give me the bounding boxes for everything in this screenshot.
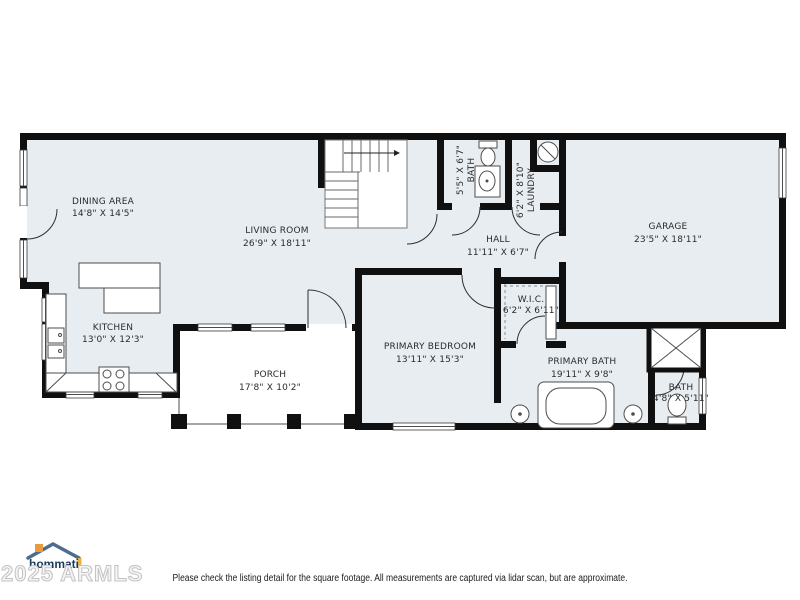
staircase: [325, 140, 407, 228]
porch-pillar: [171, 414, 187, 429]
laundry-fixtures: [538, 142, 558, 162]
armls-watermark: 2025 ARMLS: [1, 561, 143, 586]
bathtub: [538, 382, 614, 428]
room-dims-laundry: 6'2" X 8'10": [516, 162, 526, 218]
room-dims-dining: 14'8" X 14'5": [72, 209, 134, 219]
room-label-laundry: LAUNDRY: [527, 168, 537, 213]
room-label-bath-2: BATH: [669, 383, 694, 393]
room-label-garage: GARAGE: [649, 222, 688, 232]
logo-chimney-icon: [35, 544, 43, 552]
room-label-wic: W.I.C.: [518, 295, 545, 305]
room-dims-primary-bedroom: 13'11" X 15'3": [396, 355, 464, 365]
room-label-hall: HALL: [486, 235, 510, 245]
room-dims-hall: 11'11" X 6'7": [467, 248, 529, 258]
room-label-living: LIVING ROOM: [245, 226, 308, 236]
floorplan-page: DINING AREA 14'8" X 14'5" LIVING ROOM 26…: [0, 0, 800, 600]
room-label-dining: DINING AREA: [72, 197, 135, 207]
kitchen-peninsula-counter: [79, 263, 160, 288]
porch-pillar: [287, 414, 301, 429]
room-dims-wic: 6'2" X 6'11": [503, 306, 559, 316]
disclaimer-text: Please check the listing detail for the …: [173, 573, 628, 584]
room-label-bath: BATH: [467, 158, 477, 183]
room-dims-porch: 17'8" X 10'2": [239, 383, 301, 393]
room-dims-kitchen: 13'0" X 12'3": [82, 335, 144, 345]
floorplan-canvas: DINING AREA 14'8" X 14'5" LIVING ROOM 26…: [0, 0, 800, 600]
porch-pillar: [227, 414, 241, 429]
footer: hommati 2025 ARMLS Please check the list…: [1, 544, 628, 586]
room-label-porch: PORCH: [254, 370, 286, 380]
room-dims-bath-2: 4'8" X 5'11": [653, 394, 709, 404]
room-dims-living: 26'9" X 18'11": [243, 239, 311, 249]
room-label-primary-bedroom: PRIMARY BEDROOM: [384, 342, 476, 352]
toilet: [479, 141, 497, 148]
porch-pillar: [344, 414, 358, 429]
room-label-kitchen: KITCHEN: [93, 323, 133, 333]
room-dims-primary-bath: 19'11" X 9'8": [551, 370, 613, 380]
porch-fixtures: [171, 398, 358, 429]
room-label-primary-bath: PRIMARY BATH: [548, 357, 617, 367]
room-dims-bath: 5'5" X 6'7": [456, 145, 466, 195]
room-dims-garage: 23'5" X 18'11": [634, 235, 702, 245]
